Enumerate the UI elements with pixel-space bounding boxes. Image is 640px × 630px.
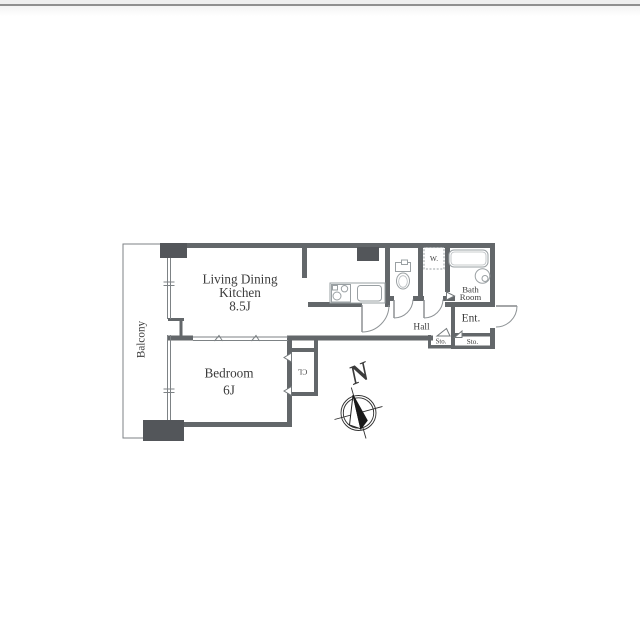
doors-layer [284, 292, 517, 396]
bath-basin [475, 269, 490, 284]
room-label-entrance: Ent. [462, 313, 481, 325]
room-label-washer: W. [430, 254, 438, 263]
room-label-storage-right: Sto. [467, 338, 479, 346]
compass-north-label: N [343, 355, 375, 391]
room-label-balcony: Balcony [136, 320, 148, 358]
room-label-bath-line2: Room [460, 292, 482, 302]
bathtub [449, 250, 490, 283]
room-label-hall: Hall [413, 323, 430, 333]
kitchen-counter [330, 283, 385, 303]
room-label-closet: CL [297, 368, 307, 377]
room-size-bedroom: 6J [223, 383, 235, 398]
floor-plan-page: N Living Dining Kitchen 8.5J Bedroom 6J … [0, 0, 640, 630]
compass-icon: N [335, 355, 383, 439]
storage-left-door-mark [437, 329, 450, 337]
toilet [396, 260, 411, 289]
room-label-bedroom: Bedroom [204, 366, 254, 381]
floor-plan: N Living Dining Kitchen 8.5J Bedroom 6J … [0, 0, 640, 630]
room-label-storage-left: Sto. [436, 339, 447, 346]
room-size-ldk: 8.5J [229, 299, 251, 314]
labels-layer: Living Dining Kitchen 8.5J Bedroom 6J Ba… [136, 254, 482, 398]
